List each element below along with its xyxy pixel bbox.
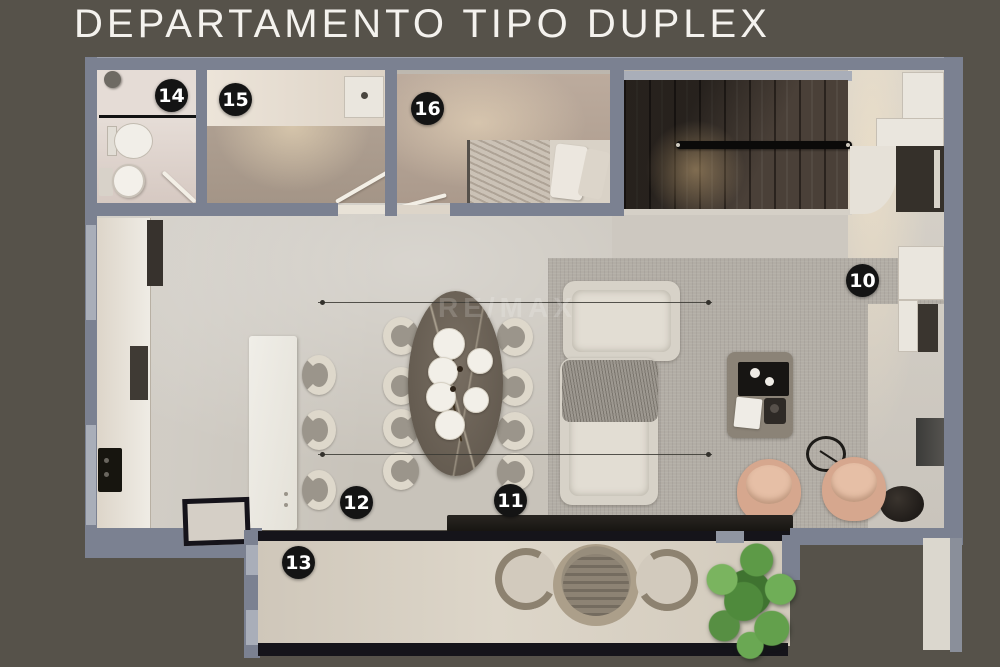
hall-shelf [876, 118, 944, 148]
armchair-2 [822, 457, 886, 521]
hall-cabinet-2 [898, 300, 918, 352]
wall-bottom-right [790, 528, 944, 545]
bedroom15-threshold [338, 205, 385, 214]
bar-stool [302, 410, 336, 450]
wall-bath-bedroom15 [196, 70, 207, 216]
island-sink-control-2 [284, 503, 288, 507]
dimension-dot-4 [706, 452, 711, 457]
candle [457, 366, 463, 372]
floor-plan-canvas: DEPARTAMENTO TIPO DUPLEX [0, 0, 1000, 667]
room-label-10-text: 10 [849, 270, 875, 292]
watermark: RE/MAX [438, 292, 577, 324]
balcony-window-left [246, 545, 258, 575]
room-label-14-text: 14 [158, 85, 184, 107]
wall-right [944, 57, 963, 545]
shower-screen [99, 115, 196, 118]
sofa-throw-blanket [562, 360, 658, 422]
bar-stool [302, 470, 336, 510]
dimension-line-lower [318, 454, 712, 455]
stair-handrail [676, 141, 852, 149]
kitchen-appliance-panel [130, 346, 148, 400]
hall-niche-2 [918, 304, 938, 352]
side-table [880, 486, 924, 522]
washbasin-faucet [361, 92, 368, 99]
kitchen-tall-cabinet [147, 220, 163, 286]
kitchen-island [249, 336, 297, 530]
hall-cabinet [898, 246, 944, 300]
island-sink-control [284, 492, 288, 496]
sofa-module-top [563, 281, 680, 361]
stair-landing-floor [612, 212, 848, 258]
room-label-10: 10 [846, 264, 879, 297]
wall-bedroom-block-b [450, 203, 610, 216]
coffee-table-book [734, 397, 763, 430]
camera-lens [770, 404, 779, 413]
bath-shelf [99, 168, 113, 196]
room-label-13-text: 13 [285, 552, 311, 574]
room-label-12: 12 [340, 486, 373, 519]
cooktop-knob [104, 458, 109, 463]
dimension-dot-2 [706, 300, 711, 305]
room-label-11-text: 11 [497, 490, 523, 512]
niche-shelf [934, 150, 940, 208]
wall-bedroom15-16 [385, 70, 397, 216]
dining-chair [497, 412, 533, 450]
room-label-12-text: 12 [343, 492, 369, 514]
tray-cup-2 [765, 377, 774, 386]
room-label-14: 14 [155, 79, 188, 112]
tv-console [447, 515, 793, 532]
tree [694, 538, 802, 660]
wall-bedroom16-stairs [610, 70, 624, 216]
candle-2 [450, 386, 456, 392]
tray-cup [750, 368, 760, 378]
bar-stool [302, 355, 336, 395]
balcony-window-left-2 [246, 610, 258, 645]
shower-head [104, 71, 121, 88]
room-label-11: 11 [494, 484, 527, 517]
bed-blanket [470, 140, 550, 203]
cooktop-knob-2 [104, 472, 109, 477]
bathroom-sink [112, 164, 145, 198]
dining-chair [383, 452, 419, 490]
left-window [86, 225, 96, 320]
pillar-bottom-right [923, 538, 950, 650]
plate [433, 328, 465, 360]
bedroom16-threshold [397, 205, 450, 214]
room-label-15-text: 15 [222, 89, 248, 111]
dimension-dot [320, 300, 325, 305]
pillar-edge [950, 538, 962, 652]
handrail-post [676, 143, 680, 147]
left-window-2 [86, 425, 96, 525]
plate [463, 387, 489, 413]
dimension-dot-3 [320, 452, 325, 457]
room-label-16: 16 [411, 92, 444, 125]
page-title: DEPARTAMENTO TIPO DUPLEX [74, 2, 771, 47]
wall-media-unit [916, 418, 944, 466]
room-label-16-text: 16 [414, 98, 440, 120]
armchair [737, 459, 801, 523]
plate [467, 348, 493, 374]
plate [435, 410, 465, 440]
toilet [114, 123, 153, 159]
wall-bedroom-block-a [97, 203, 338, 216]
coffee-table-tray [738, 362, 789, 396]
balcony-table [553, 544, 639, 626]
room-label-15: 15 [219, 83, 252, 116]
entry-mat [182, 497, 251, 546]
kitchen-cooktop [98, 448, 122, 492]
stair-bottom-edge [624, 209, 852, 215]
wall-top [85, 57, 963, 70]
room-label-13: 13 [282, 546, 315, 579]
